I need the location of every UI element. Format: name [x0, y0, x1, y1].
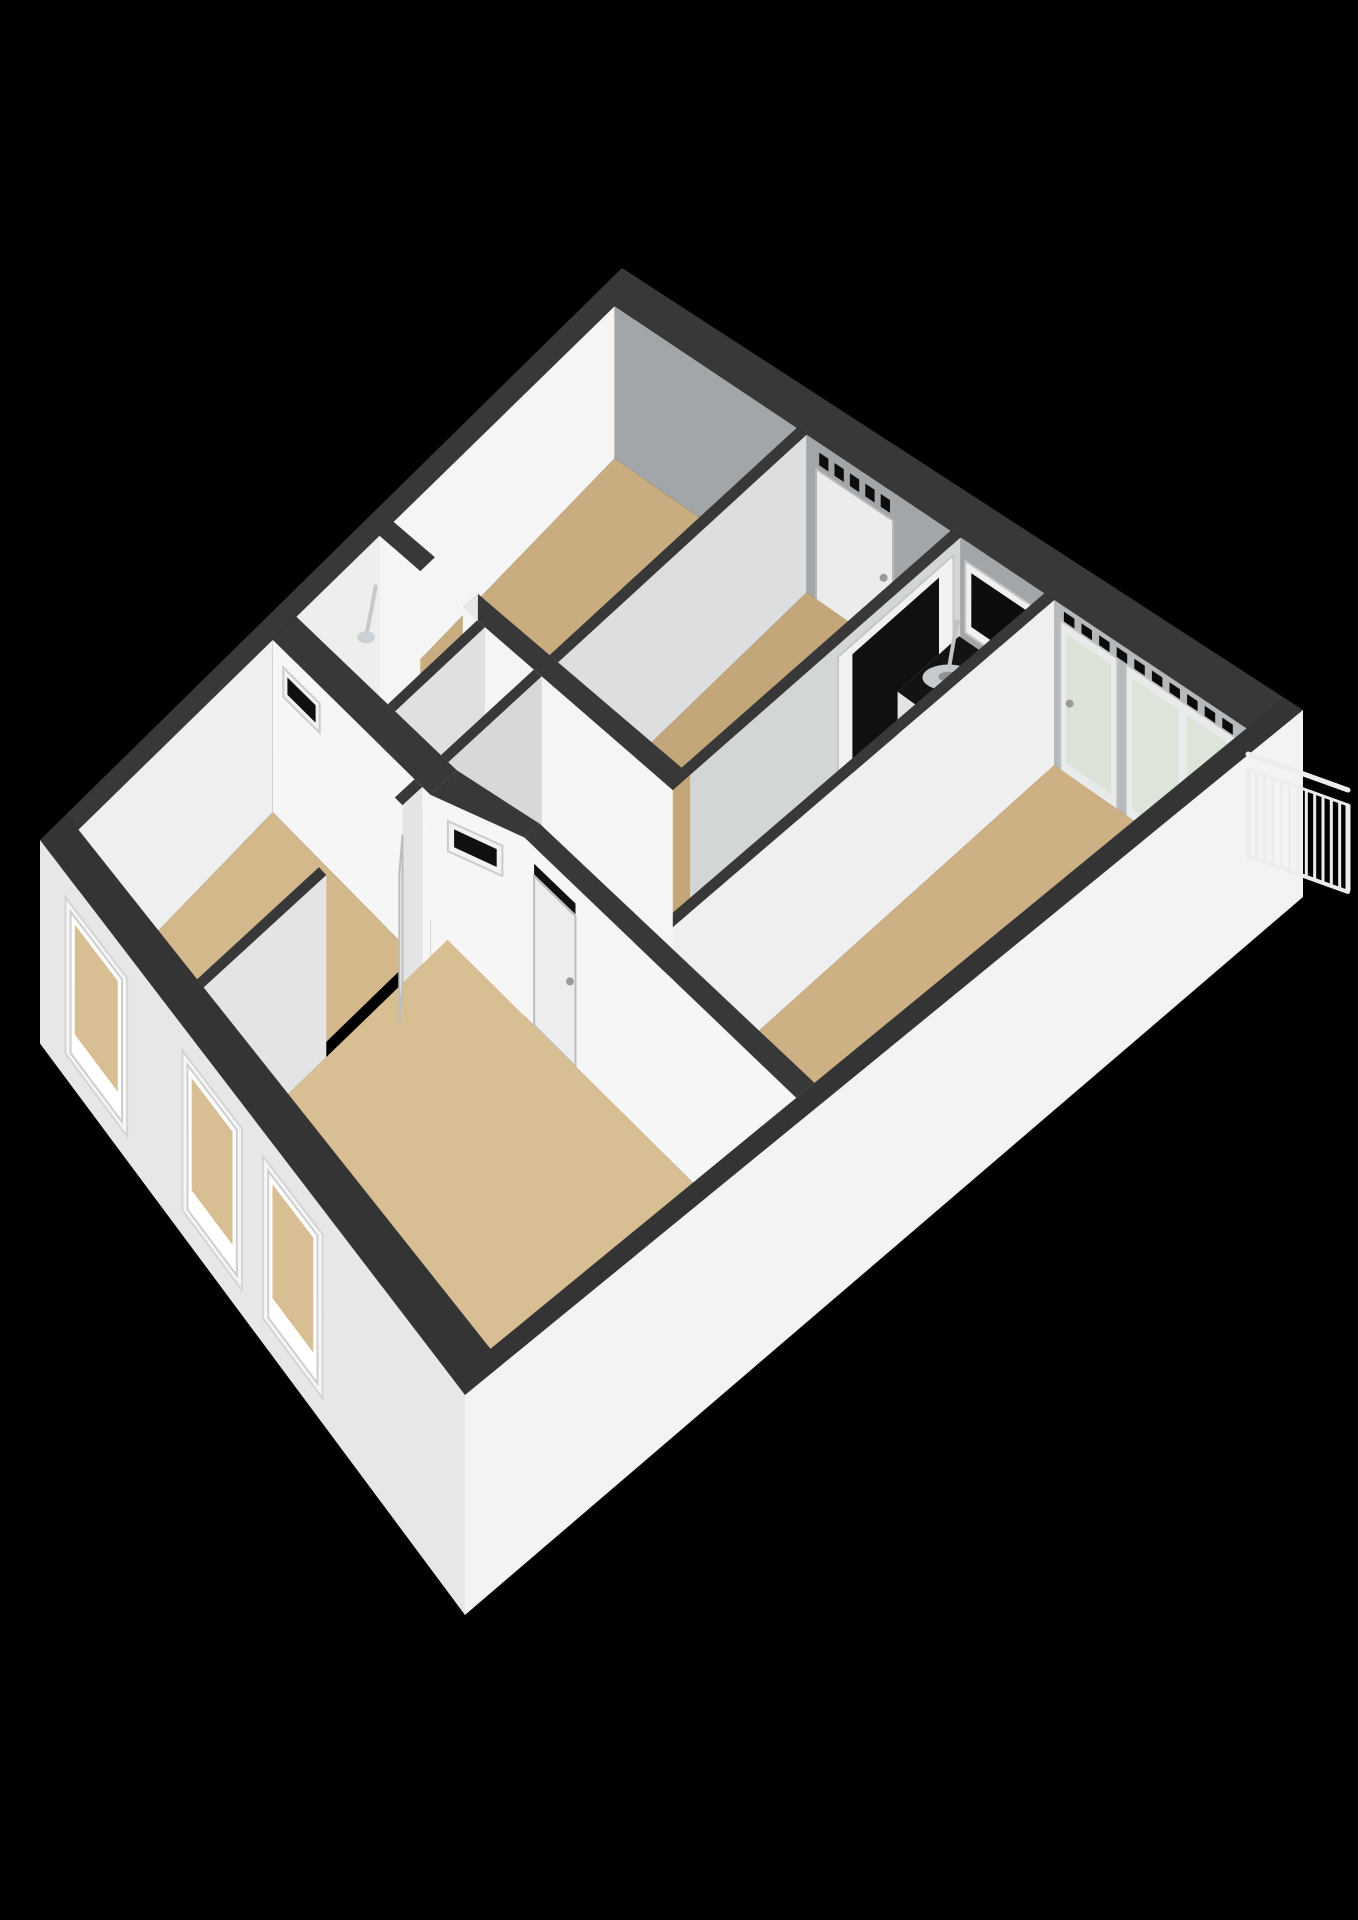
wall-w8-upper-face: [403, 787, 423, 983]
kitchen-faucet-head: [953, 620, 961, 626]
floorplan-3d-view: [0, 0, 1358, 1920]
shower-head: [357, 631, 375, 643]
entry-door-handle: [880, 574, 888, 582]
floorplan-stage: [0, 0, 1358, 1920]
bedroom3-door-leaf: [399, 835, 402, 1025]
balcony-door-handle: [1066, 700, 1074, 708]
living-door-handle: [566, 977, 574, 985]
